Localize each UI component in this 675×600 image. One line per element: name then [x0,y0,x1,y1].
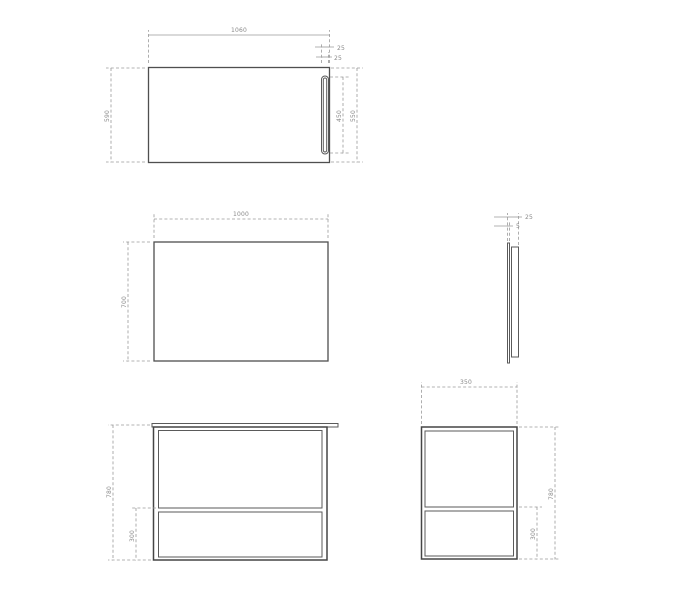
stand-side-frame-outline [422,427,518,559]
stand-side-view: 350 780 300 [422,379,561,559]
countertop-top-view: 1060 590 450 550 25 25 [104,27,363,163]
label-stand-height: 780 [106,486,113,498]
slot-outline [322,76,329,154]
label-stand-depth: 350 [460,379,472,386]
label-slot-width: 25 [337,45,345,52]
label-shelf-height: 300 [129,530,136,542]
countertop-outline [149,68,330,163]
panel-outline [154,242,328,361]
stand-lower-opening [159,512,323,557]
drawing-page: 1060 590 450 550 25 25 1000 700 25 5 [0,0,675,600]
label-countertop-depth: 590 [104,110,111,122]
label-slot-length: 450 [336,110,343,122]
stand-frame-outline [154,427,328,560]
label-slot-span: 550 [350,110,357,122]
stand-side-upper-opening [425,431,514,507]
panel-glass-edge [508,243,510,363]
panel-board-edge [512,247,519,357]
label-countertop-width: 1060 [231,27,247,34]
label-panel-height: 700 [121,296,128,308]
stand-front-view: 780 300 [106,424,338,561]
label-panel-thickness: 25 [525,214,533,221]
panel-side-view: 25 5 [494,213,533,363]
label-glass-thickness: 5 [516,223,520,230]
technical-drawing-canvas: 1060 590 450 550 25 25 1000 700 25 5 [0,0,675,600]
slot-inner-outline [323,78,326,152]
stand-side-lower-opening [425,511,514,556]
label-stand-side-height: 780 [548,488,555,500]
slot-dim-leaders [315,47,334,57]
stand-side-extension-lines [422,382,561,559]
label-panel-width: 1000 [233,211,249,218]
label-slot-edge-offset: 25 [334,55,342,62]
stand-upper-opening [159,431,323,509]
panel-front-view: 1000 700 [121,211,328,361]
label-stand-side-shelf: 300 [530,528,537,540]
top-view-extension-lines [106,30,363,162]
